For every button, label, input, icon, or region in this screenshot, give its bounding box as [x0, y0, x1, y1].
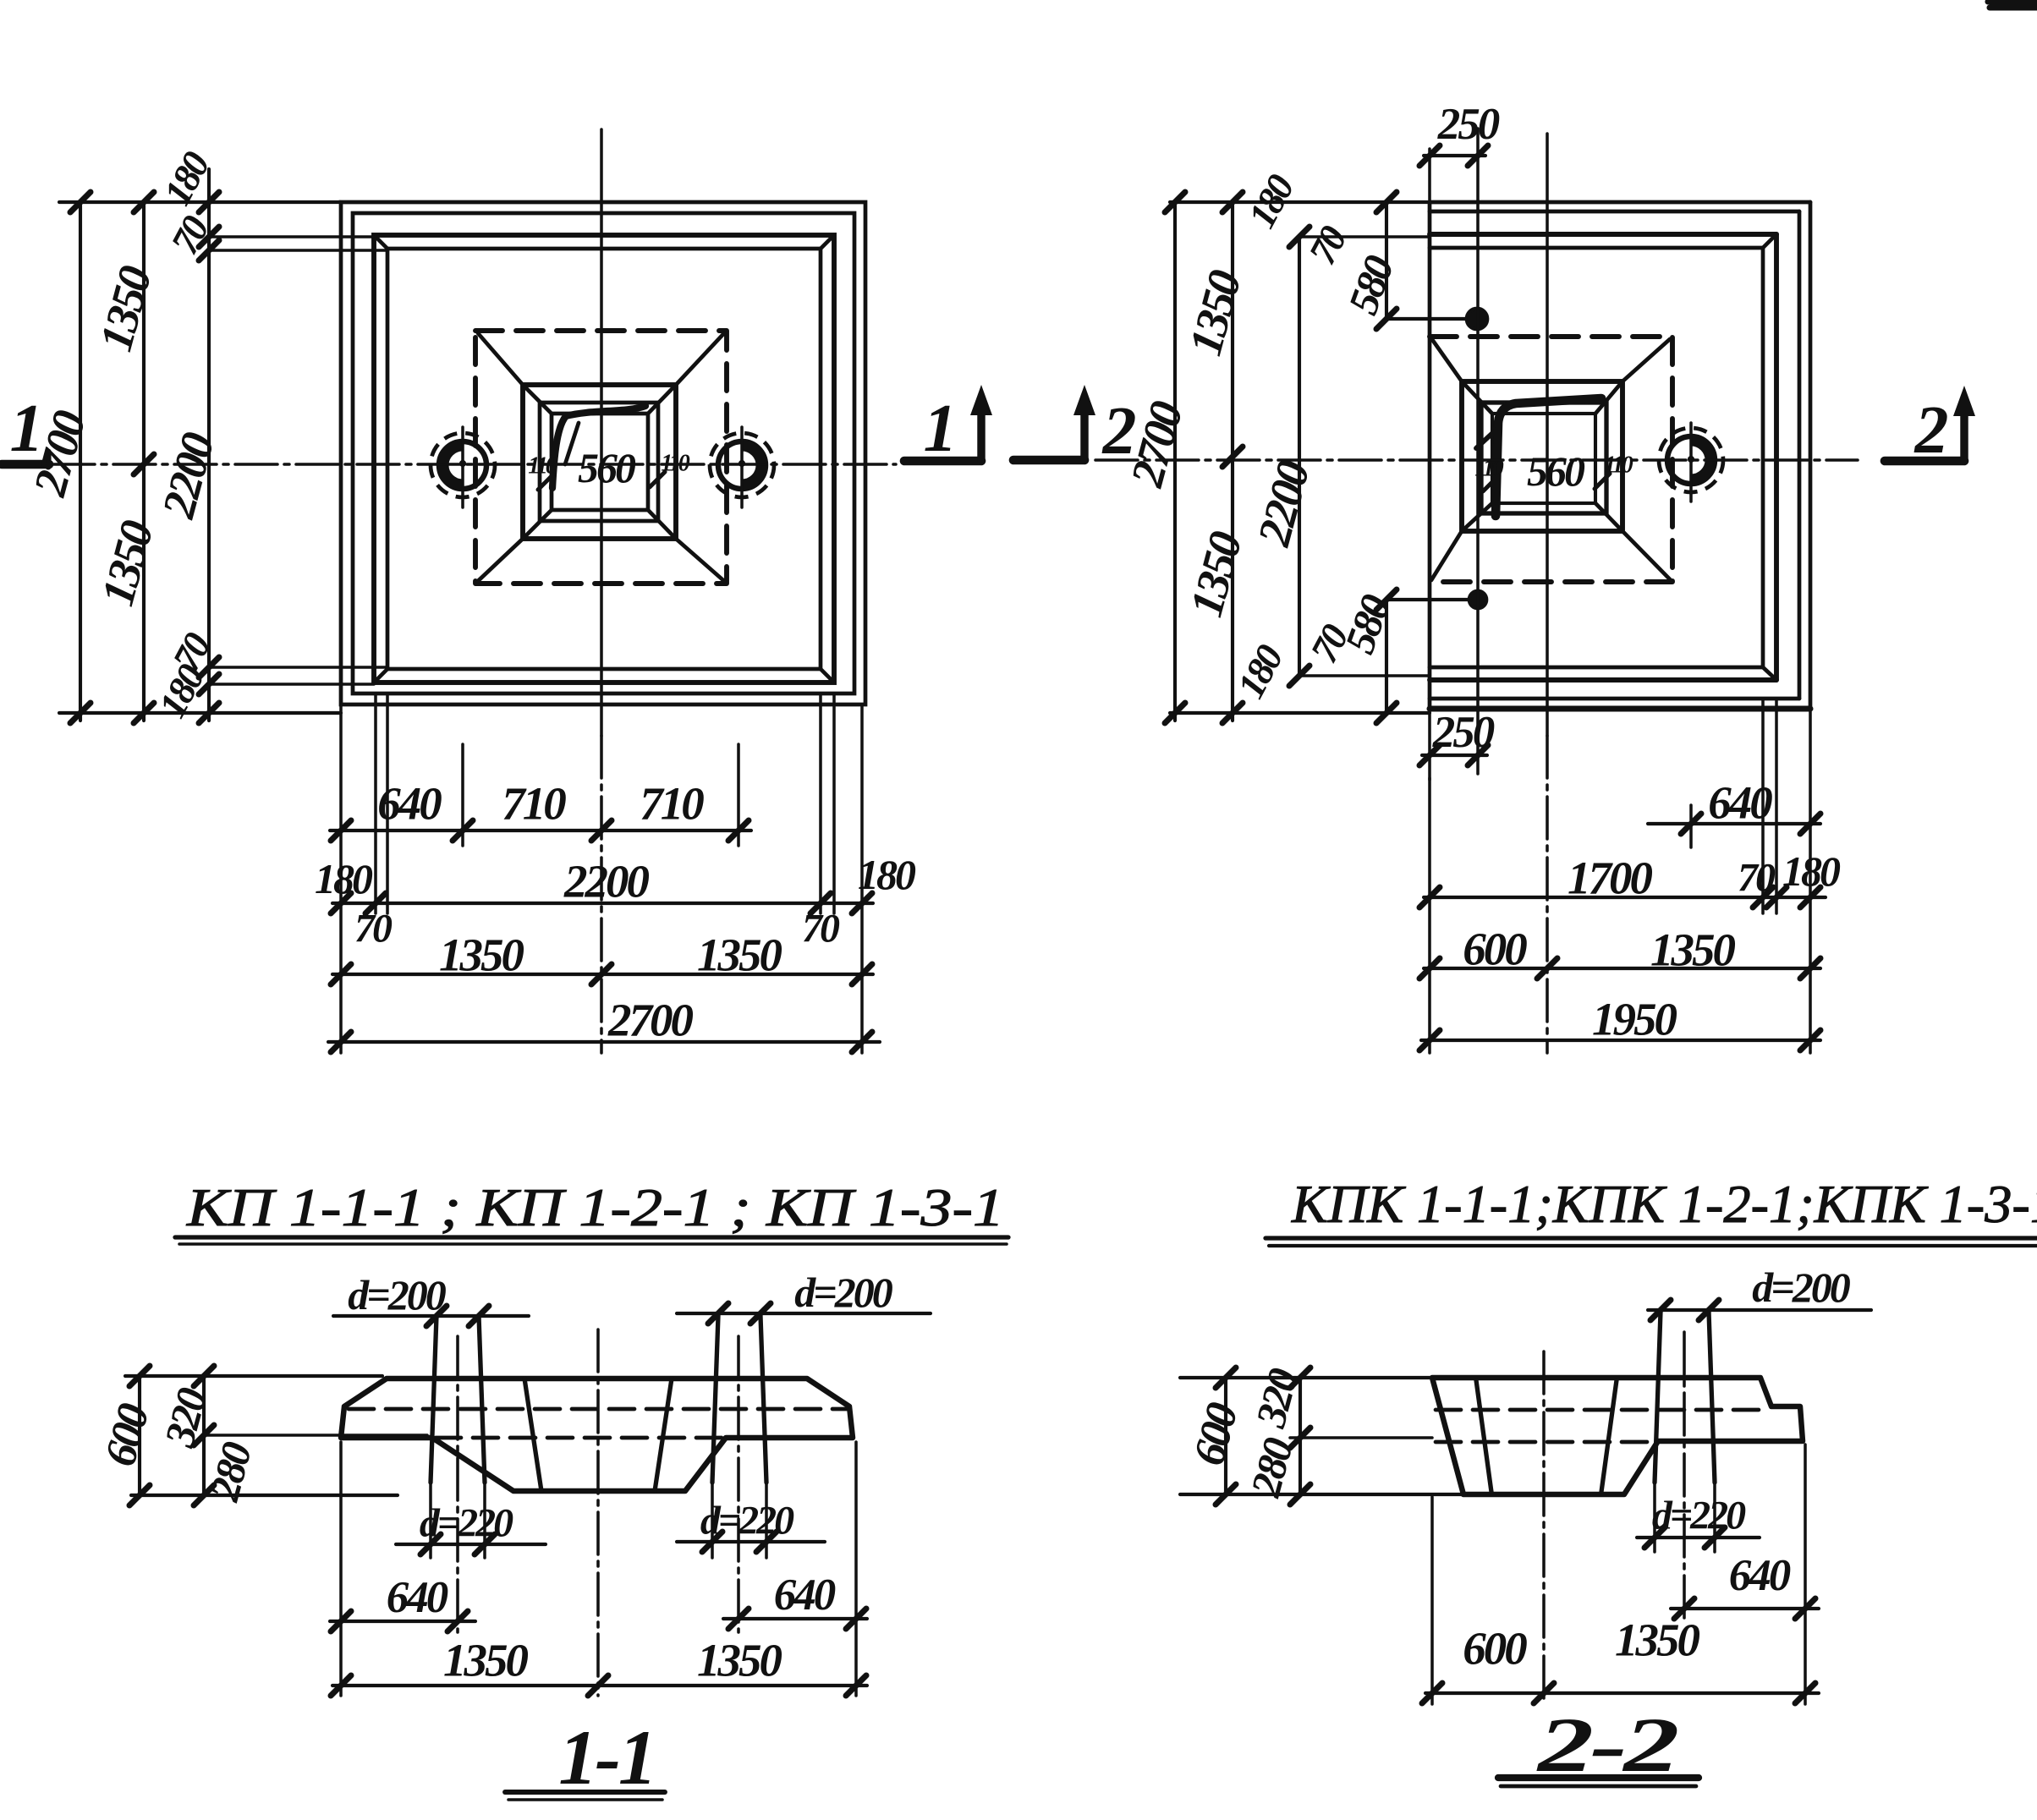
svg-text:250: 250 — [1437, 100, 1500, 149]
svg-text:КПК 1-1-1;КПК 1-2-1;КПК 1-3-1: КПК 1-1-1;КПК 1-2-1;КПК 1-3-1 — [1291, 1174, 2037, 1234]
svg-text:1-1: 1-1 — [558, 1714, 655, 1801]
svg-text:1350: 1350 — [439, 929, 524, 981]
svg-text:1: 1 — [924, 392, 955, 466]
svg-text:640: 640 — [377, 778, 442, 830]
svg-text:1350: 1350 — [697, 929, 782, 981]
svg-text:70: 70 — [354, 907, 393, 951]
svg-text:1350: 1350 — [1650, 924, 1736, 976]
svg-text:d=220: d=220 — [420, 1501, 513, 1546]
svg-text:640: 640 — [774, 1571, 836, 1620]
svg-text:70: 70 — [1738, 856, 1776, 901]
svg-text:КП 1-1-1 ; КП 1-2-1 ; КП 1-3-1: КП 1-1-1 ; КП 1-2-1 ; КП 1-3-1 — [186, 1177, 1004, 1237]
svg-text:250: 250 — [1432, 708, 1495, 757]
svg-text:d=200: d=200 — [348, 1271, 446, 1318]
svg-text:1950: 1950 — [1592, 994, 1677, 1045]
svg-text:1350: 1350 — [1615, 1614, 1700, 1666]
svg-text:180: 180 — [315, 855, 373, 902]
svg-text:2200: 2200 — [563, 856, 650, 907]
svg-text:70: 70 — [802, 907, 840, 951]
svg-text:710: 710 — [502, 778, 566, 830]
svg-text:560: 560 — [1527, 447, 1585, 495]
svg-text:710: 710 — [640, 778, 704, 830]
svg-text:1700: 1700 — [1568, 852, 1653, 904]
svg-text:600: 600 — [1463, 924, 1527, 975]
svg-text:1350: 1350 — [697, 1635, 782, 1686]
svg-text:1350: 1350 — [443, 1635, 529, 1686]
svg-text:d=200: d=200 — [794, 1269, 892, 1316]
svg-text:180: 180 — [858, 851, 916, 898]
svg-text:2: 2 — [1914, 393, 1948, 468]
svg-text:2700: 2700 — [607, 995, 694, 1046]
svg-text:d=200: d=200 — [1752, 1264, 1850, 1311]
svg-text:640: 640 — [387, 1573, 448, 1622]
svg-text:180: 180 — [1782, 847, 1841, 895]
svg-text:560: 560 — [578, 444, 636, 491]
svg-text:d=220: d=220 — [1652, 1494, 1746, 1538]
svg-text:640: 640 — [1708, 777, 1772, 829]
svg-text:600: 600 — [1463, 1623, 1527, 1675]
svg-text:d=220: d=220 — [700, 1499, 794, 1543]
svg-text:640: 640 — [1729, 1551, 1791, 1600]
